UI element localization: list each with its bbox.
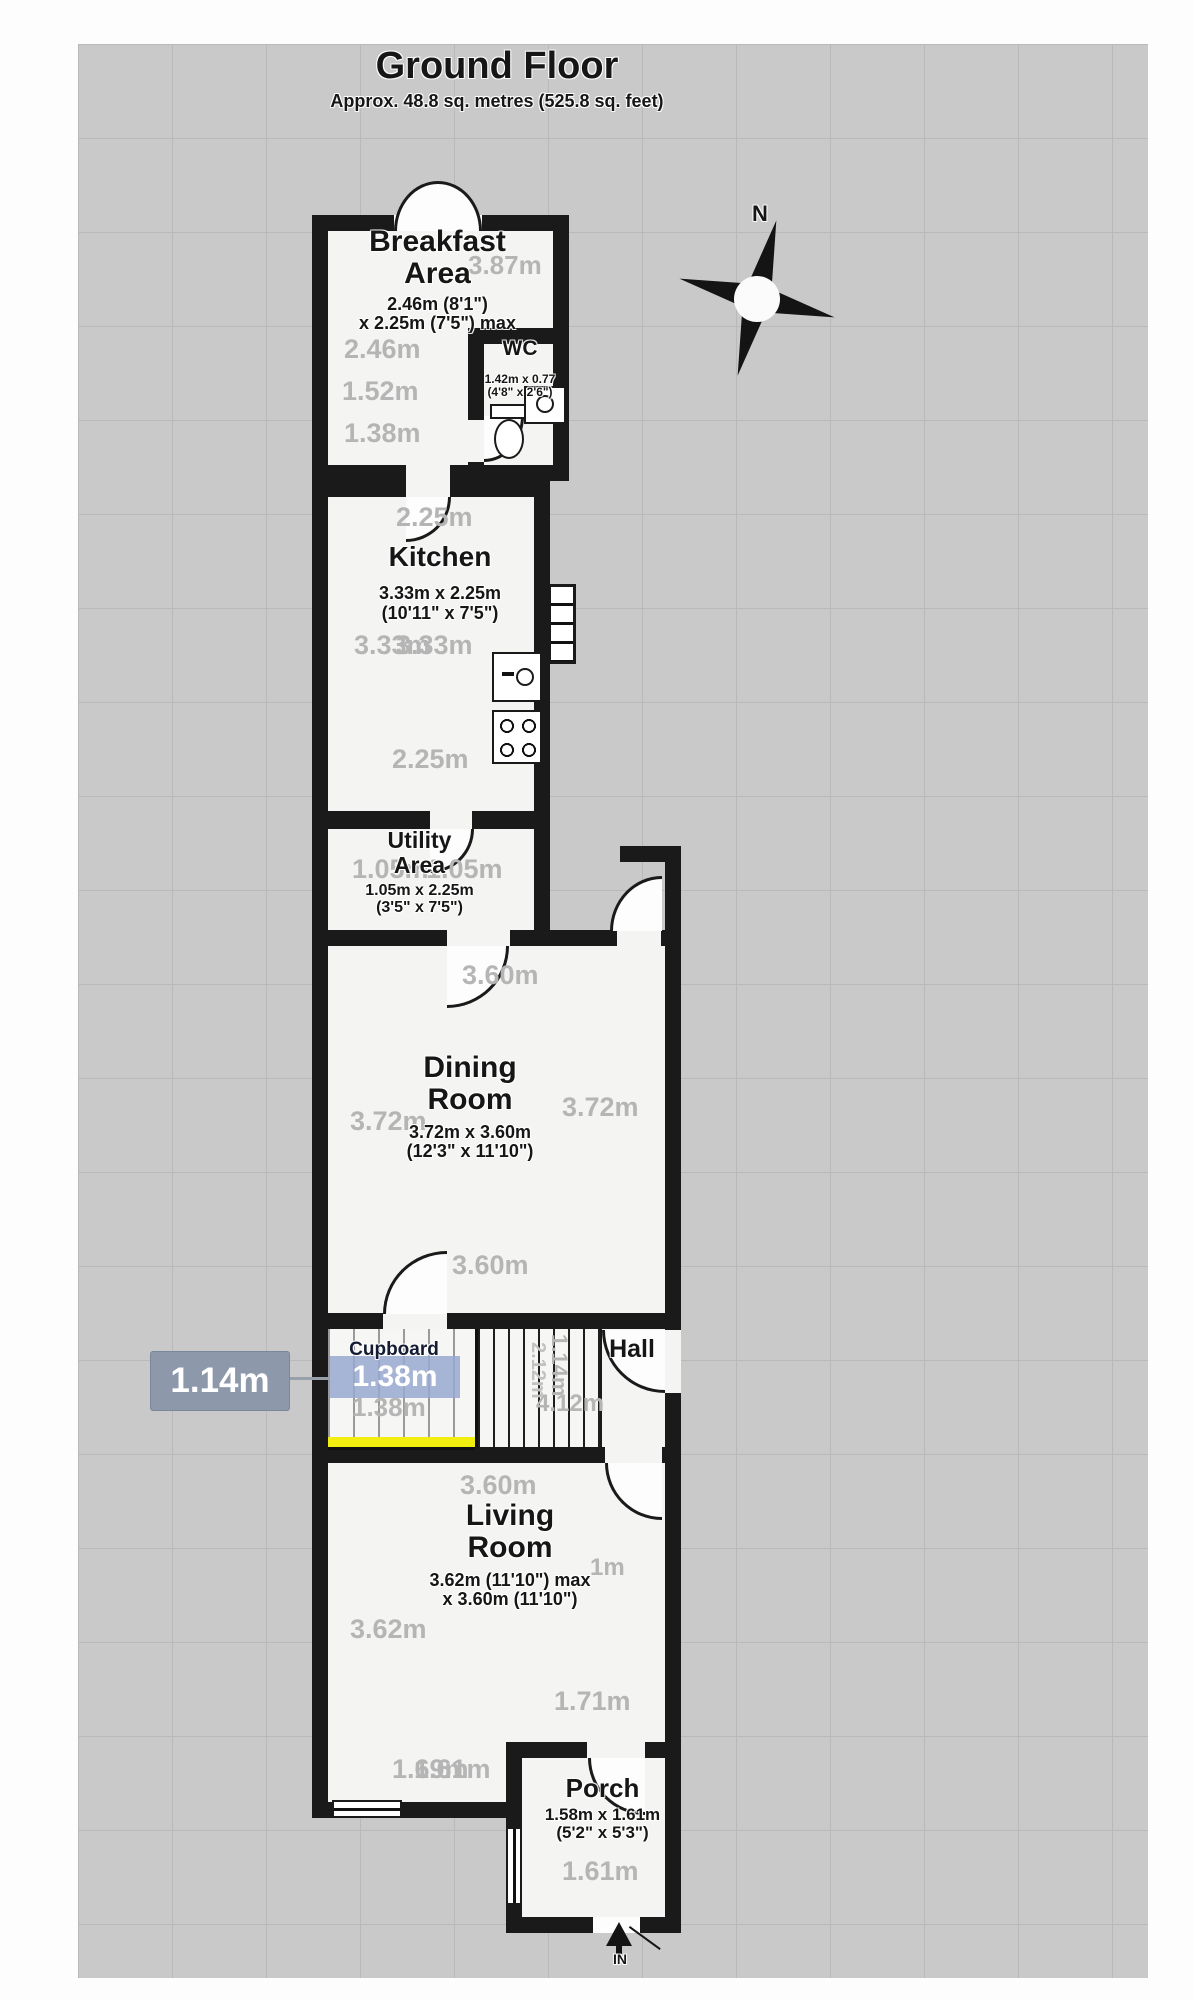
room-name: Dining [365, 1052, 575, 1084]
cupboard-dim-highlight[interactable]: 1.38m [330, 1356, 460, 1398]
dim-label: 3.60m [462, 962, 539, 989]
room-dims: 2.46m (8'1") [330, 295, 545, 314]
door-opening [605, 1447, 662, 1463]
door-opening [447, 930, 510, 946]
dim-label: 3.62m [350, 1616, 427, 1643]
dim-label: 1.61m [414, 1756, 491, 1783]
label-breakfast-area: Breakfast Area 2.46m (8'1") x 2.25m (7'5… [330, 226, 545, 334]
kitchen-sink-bowl-icon [516, 668, 534, 686]
toilet-bowl-icon [494, 419, 524, 459]
room-dims: x 2.25m (7'5") max [330, 314, 545, 333]
label-dining-room: Dining Room 3.72m x 3.60m (12'3" x 11'10… [365, 1052, 575, 1162]
room-dims: (3'5" x 7'5") [352, 899, 487, 916]
page-title-block: Ground Floor Approx. 48.8 sq. metres (52… [297, 46, 697, 111]
door-opening [468, 420, 484, 462]
dim-label: 2.25m [396, 504, 473, 531]
room-name: Breakfast [330, 226, 545, 258]
door-opening [406, 465, 450, 497]
dim-label: 1.71m [554, 1688, 631, 1715]
room-dims: (10'11" x 7'5") [335, 604, 545, 623]
toilet-cistern-icon [490, 404, 528, 419]
room-name: WC [470, 338, 570, 361]
dim-label: 3.60m [452, 1252, 529, 1279]
cupboard-selected-edge[interactable] [328, 1437, 475, 1450]
room-dims: 1.42m x 0.77 [470, 373, 570, 386]
dim-label: 1.61m [562, 1858, 639, 1885]
dim-label: 1.52m [342, 378, 419, 405]
compass-hub-icon [734, 276, 780, 322]
room-name: Area [330, 258, 545, 290]
dim-label: 2.46m [344, 336, 421, 363]
dim-label: 1.38m [344, 420, 421, 447]
page-title: Ground Floor [297, 46, 697, 87]
window [506, 1827, 522, 1905]
room-dims: 3.62m (11'10") max [395, 1571, 625, 1590]
label-wc: WC 1.42m x 0.77 (4'8" x 2'6") [470, 338, 570, 399]
room-name: Room [395, 1532, 625, 1564]
room-name: Porch [530, 1774, 675, 1802]
room-dims: x 3.60m (11'10") [395, 1590, 625, 1609]
dimension-connector-line [288, 1377, 330, 1380]
entrance-label: IN [600, 1952, 640, 1967]
room-dims: (5'2" x 5'3") [530, 1824, 675, 1842]
selected-dimension-box[interactable]: 1.14m [150, 1351, 290, 1411]
room-dims: (12'3" x 11'10") [365, 1142, 575, 1161]
dim-label: 3.60m [460, 1472, 537, 1499]
dim-label: 1.14m [548, 1334, 570, 1396]
room-name: Living [395, 1500, 625, 1532]
label-cupboard: Cupboard [328, 1340, 460, 1361]
room-name: Area [352, 853, 487, 878]
page-subtitle: Approx. 48.8 sq. metres (525.8 sq. feet) [297, 92, 697, 111]
dim-label: 2.25m [392, 746, 469, 773]
room-dims: 3.72m x 3.60m [365, 1123, 575, 1142]
door-opening [617, 930, 661, 946]
room-name: Utility [352, 828, 487, 853]
entrance-arrow-icon [606, 1922, 632, 1946]
dim-label: 2.12m [528, 1342, 548, 1399]
kitchen-hob-icon [492, 710, 542, 764]
kitchen-sink-tap-icon [502, 672, 514, 676]
window [332, 1800, 402, 1818]
room-dims: 3.33m x 2.25m [335, 584, 545, 603]
compass-north-label: N [745, 202, 775, 226]
floorplan-page: Ground Floor Approx. 48.8 sq. metres (52… [0, 0, 1193, 2000]
label-kitchen: Kitchen 3.33m x 2.25m (10'11" x 7'5") [335, 542, 545, 623]
room-name: Room [365, 1084, 575, 1116]
dim-label: 3.33m [396, 632, 473, 659]
wall-side-entry-horizontal [620, 846, 681, 862]
door-opening [587, 1742, 645, 1758]
label-utility-area: Utility Area 1.05m x 2.25m (3'5" x 7'5") [352, 828, 487, 916]
label-hall: Hall [592, 1336, 672, 1363]
label-living-room: Living Room 3.62m (11'10") max x 3.60m (… [395, 1500, 625, 1610]
door-opening [383, 1313, 447, 1329]
room-dims: 1.05m x 2.25m [352, 882, 487, 899]
room-dims: 1.58m x 1.61m [530, 1806, 675, 1824]
window [548, 584, 576, 664]
label-porch: Porch 1.58m x 1.61m (5'2" x 5'3") [530, 1774, 675, 1843]
room-name: Kitchen [335, 542, 545, 572]
room-dims: (4'8" x 2'6") [470, 386, 570, 399]
